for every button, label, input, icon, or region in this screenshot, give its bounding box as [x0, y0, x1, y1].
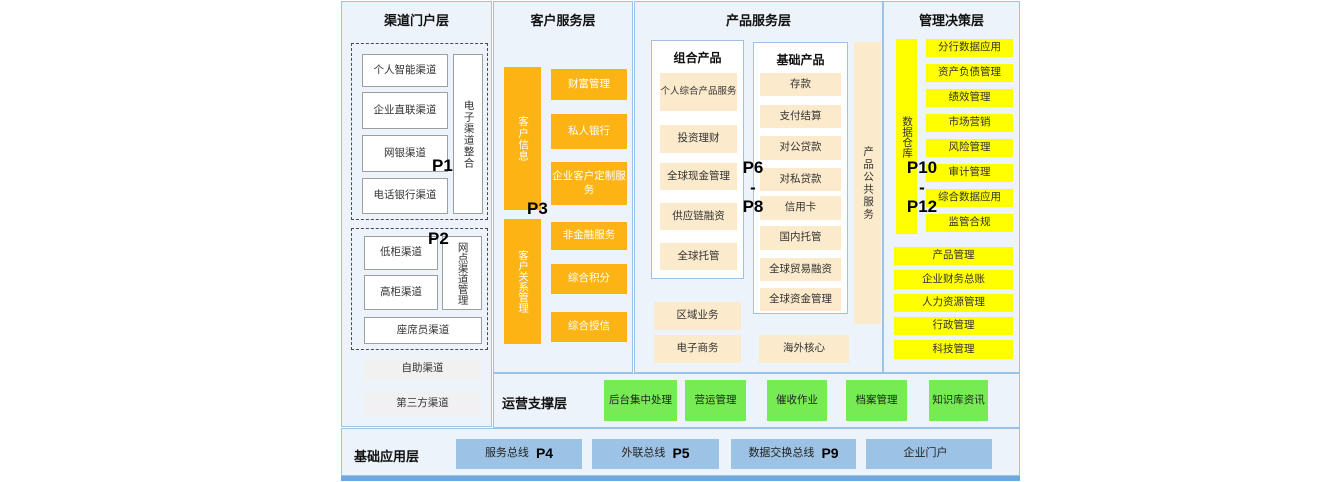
- layer-title: 管理决策层: [884, 10, 1019, 29]
- layer-management-decision: 管理决策层 数据仓库 分行数据应用 资产负债管理 绩效管理 市场营销 风险管理 …: [883, 1, 1020, 373]
- p-range-dash: -: [750, 178, 756, 198]
- bus-p-code: P9: [821, 445, 838, 463]
- bus-box: 企业门户: [866, 439, 992, 469]
- product-item: 对公贷款: [760, 136, 841, 160]
- layer-title: 运营支撑层: [502, 393, 567, 412]
- channel-box: 座席员渠道: [364, 317, 482, 344]
- layer-foundation-application: 基础应用层 服务总线 P4 外联总线 P5 数据交换总线 P9 企业门户: [341, 428, 1020, 476]
- service-box: 企业客户定制服务: [551, 162, 627, 205]
- mgmt-wide-item: 企业财务总账: [894, 270, 1013, 289]
- p-range-dash: -: [919, 178, 925, 198]
- service-box: 综合积分: [551, 264, 627, 294]
- p1-label: P1: [432, 157, 453, 174]
- layer-title: 产品服务层: [635, 10, 882, 29]
- echannel-integration-bar: 电子渠道整合: [453, 54, 483, 214]
- bus-label: 外联总线: [621, 447, 665, 461]
- bus-p-code: P4: [536, 445, 553, 463]
- mgmt-item: 分行数据应用: [926, 39, 1013, 57]
- service-box: 财富管理: [551, 69, 627, 100]
- channel-box: 个人智能渠道: [362, 54, 448, 87]
- p2-label: P2: [428, 230, 449, 247]
- product-item: 信用卡: [760, 196, 841, 220]
- channel-box: 低柜渠道: [364, 236, 438, 270]
- layer-title: 渠道门户层: [342, 10, 491, 29]
- ops-box: 催收作业: [767, 380, 827, 421]
- product-item: 投资理财: [660, 125, 737, 153]
- channel-box: 高柜渠道: [364, 275, 438, 310]
- bus-label: 服务总线: [485, 447, 529, 461]
- layer-title: 客户服务层: [494, 10, 632, 29]
- p-range-end: P8: [743, 197, 764, 217]
- p-range-start: P10: [907, 158, 937, 178]
- basic-product-header: 基础产品: [754, 51, 847, 68]
- ops-box: 知识库资讯: [929, 380, 988, 421]
- e-channel-group: 个人智能渠道 企业直联渠道 网银渠道 电话银行渠道 电子渠道整合 P1: [351, 43, 488, 220]
- bus-box: 服务总线 P4: [456, 439, 582, 469]
- p6-p8-label: P6 - P8: [735, 158, 771, 217]
- p-range-start: P6: [743, 158, 764, 178]
- mgmt-wide-item: 产品管理: [894, 247, 1013, 265]
- bus-label: 数据交换总线: [748, 447, 814, 461]
- bottom-accent-strip: [341, 476, 1020, 481]
- mgmt-wide-item: 行政管理: [894, 317, 1013, 335]
- product-item: 支付结算: [760, 105, 841, 128]
- ops-box: 营运管理: [685, 380, 746, 421]
- product-item: 对私贷款: [760, 168, 841, 191]
- layer-operations-support: 运营支撑层 后台集中处理 营运管理 催收作业 档案管理 知识库资讯: [493, 373, 1020, 428]
- channel-box: 第三方渠道: [364, 392, 481, 415]
- ops-box: 后台集中处理: [604, 380, 677, 421]
- service-box: 私人银行: [551, 114, 627, 149]
- branch-channel-group: 低柜渠道 高柜渠道 网点渠道管理 座席员渠道 P2: [351, 228, 488, 350]
- p-range-end: P12: [907, 197, 937, 217]
- product-item: 全球资金管理: [760, 288, 841, 311]
- customer-relation-bar: 客户关系管理: [504, 219, 541, 344]
- mgmt-item: 绩效管理: [926, 89, 1013, 107]
- architecture-diagram: 渠道门户层 个人智能渠道 企业直联渠道 网银渠道 电话银行渠道 电子渠道整合 P…: [341, 1, 1021, 481]
- product-common-service-bar: 产品公共服务: [854, 42, 881, 324]
- ops-box: 档案管理: [846, 380, 907, 421]
- product-item: 个人综合产品服务: [660, 73, 737, 111]
- bus-box: 数据交换总线 P9: [731, 439, 856, 469]
- combo-product-header: 组合产品: [652, 49, 743, 66]
- mgmt-item: 市场营销: [926, 114, 1013, 132]
- mgmt-wide-item: 人力资源管理: [894, 294, 1013, 312]
- bus-p-code: P5: [672, 445, 689, 463]
- product-item: 电子商务: [654, 335, 741, 363]
- service-box: 非金融服务: [551, 222, 627, 250]
- mgmt-item: 风险管理: [926, 139, 1013, 157]
- layer-channel-portal: 渠道门户层 个人智能渠道 企业直联渠道 网银渠道 电话银行渠道 电子渠道整合 P…: [341, 1, 492, 427]
- bus-box: 外联总线 P5: [592, 439, 719, 469]
- mgmt-item: 资产负债管理: [926, 64, 1013, 82]
- product-item: 全球贸易融资: [760, 258, 841, 281]
- channel-box: 企业直联渠道: [362, 92, 448, 129]
- layer-title: 基础应用层: [354, 446, 419, 465]
- p3-label: P3: [527, 200, 548, 217]
- product-item: 区域业务: [654, 302, 741, 330]
- product-item: 海外核心: [759, 335, 849, 363]
- product-item: 国内托管: [760, 226, 841, 250]
- p10-p12-label: P10 - P12: [902, 158, 942, 217]
- product-item: 全球托管: [660, 243, 737, 270]
- channel-box: 电话银行渠道: [362, 178, 448, 214]
- product-item: 全球现金管理: [660, 163, 737, 190]
- product-item: 供应链融资: [660, 203, 737, 230]
- product-item: 存款: [760, 73, 841, 96]
- bus-label: 企业门户: [904, 447, 948, 461]
- mgmt-wide-item: 科技管理: [894, 340, 1013, 359]
- mgmt-item: 监管合规: [926, 214, 1013, 232]
- layer-product-service: 产品服务层 组合产品 个人综合产品服务 投资理财 全球现金管理 供应链融资 全球…: [634, 1, 883, 373]
- channel-box: 自助渠道: [364, 358, 481, 380]
- service-box: 综合授信: [551, 312, 627, 342]
- customer-info-bar: 客户信息: [504, 67, 541, 210]
- layer-customer-service: 客户服务层 客户信息 财富管理 私人银行 企业客户定制服务 P3 客户关系管理 …: [493, 1, 633, 373]
- combo-product-panel: 组合产品 个人综合产品服务 投资理财 全球现金管理 供应链融资 全球托管: [651, 40, 744, 279]
